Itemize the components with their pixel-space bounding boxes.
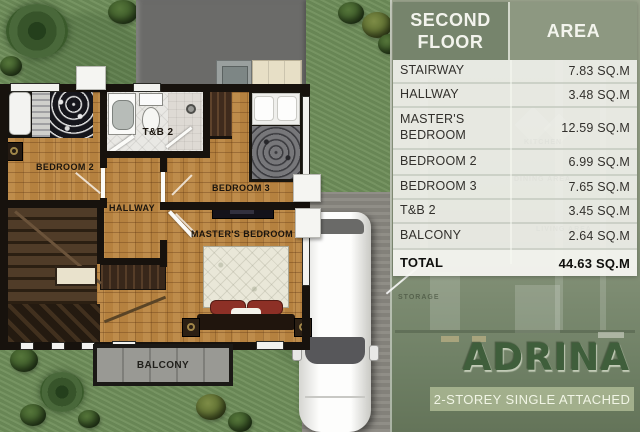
bed3-frame <box>249 90 303 182</box>
bedroom2-label: BEDROOM 2 <box>30 162 100 172</box>
balcony-door <box>256 341 284 350</box>
table-row: HALLWAY 3.48 SQ.M <box>393 82 637 106</box>
hallway-label: HALLWAY <box>102 203 162 213</box>
room-area: 7.83 SQ.M <box>510 64 637 78</box>
room-name: STAIRWAY <box>393 63 510 79</box>
wall-interior <box>203 92 210 151</box>
bush <box>108 0 138 24</box>
door-bedroom3 <box>161 172 165 202</box>
window <box>302 96 310 178</box>
bush <box>20 404 46 426</box>
wall-interior <box>100 151 210 158</box>
tb2-label: T&B 2 <box>136 127 180 138</box>
window <box>51 342 65 350</box>
lamp <box>10 147 18 155</box>
bush <box>338 2 364 24</box>
room-name: BEDROOM 2 <box>393 154 510 170</box>
wall-interior <box>97 208 104 264</box>
subtitle-text: 2-STOREY SINGLE ATTACHED <box>434 392 630 407</box>
bush <box>78 410 100 428</box>
wall-interior <box>100 158 107 168</box>
wardrobe <box>100 261 166 290</box>
window <box>133 83 161 92</box>
closet <box>210 92 232 139</box>
table-row: T&B 2 3.45 SQ.M <box>393 198 637 222</box>
room-area: 3.45 SQ.M <box>510 204 637 218</box>
stair-skylight <box>55 266 97 286</box>
table-row: BEDROOM 2 6.99 SQ.M <box>393 148 637 174</box>
total-label: TOTAL <box>393 255 510 271</box>
bed3-pillow <box>254 96 274 121</box>
tree-fern <box>6 4 68 58</box>
table-total-row: TOTAL 44.63 SQ.M <box>393 248 637 276</box>
table-row: BEDROOM 3 7.65 SQ.M <box>393 174 637 198</box>
bush <box>10 348 38 372</box>
floorplan-flyer: { "table": { "header": {"col1": "SECOND … <box>0 0 640 432</box>
subtitle-bar: 2-STOREY SINGLE ATTACHED <box>430 387 634 411</box>
car-windshield <box>305 337 365 364</box>
wall-left <box>0 84 8 350</box>
bedroom3-label: BEDROOM 3 <box>206 183 276 193</box>
balcony-label: BALCONY <box>137 360 189 371</box>
room-area: 2.64 SQ.M <box>510 229 637 243</box>
door-bedroom2 <box>101 168 105 198</box>
table-column-divider <box>510 60 512 264</box>
room-name: BALCONY <box>393 228 510 244</box>
ghost-step <box>441 336 459 342</box>
area-table-header: SECOND FLOOR AREA <box>393 2 637 60</box>
car-hood-line <box>305 396 365 398</box>
wall-interior <box>160 158 167 172</box>
balcony: BALCONY <box>93 344 233 386</box>
bed2-sheet <box>32 91 50 137</box>
wall-interior <box>100 258 167 265</box>
nightstand <box>182 318 200 337</box>
bathroom-vanity <box>108 93 136 135</box>
lamp <box>187 323 195 331</box>
room-area: 3.48 SQ.M <box>510 88 637 102</box>
table-row: MASTER'S BEDROOM 12.59 SQ.M <box>393 106 637 148</box>
header-second-floor: SECOND FLOOR <box>393 2 510 60</box>
bed3-blanket <box>252 126 300 179</box>
table-row: STAIRWAY 7.83 SQ.M <box>393 60 637 82</box>
header-area: AREA <box>510 2 637 60</box>
ghost-door <box>430 272 460 330</box>
ghost-storage-label: STORAGE <box>398 294 440 301</box>
master-bed-blanket <box>203 246 289 308</box>
room-area: 7.65 SQ.M <box>510 180 637 194</box>
wall-interior <box>167 202 302 210</box>
bed2-pillow <box>9 92 31 135</box>
window <box>10 83 60 92</box>
room-area: 6.99 SQ.M <box>510 155 637 169</box>
bed2-frame <box>7 90 93 138</box>
bush <box>196 394 226 420</box>
shower-head <box>186 104 196 114</box>
table-row: BALCONY 2.64 SQ.M <box>393 222 637 248</box>
total-area: 44.63 SQ.M <box>510 256 637 271</box>
master-headboard <box>197 314 295 330</box>
ghost-room <box>515 285 560 333</box>
ac-unit <box>295 208 321 238</box>
wall-interior <box>100 92 107 158</box>
room-name: MASTER'S BEDROOM <box>393 112 510 143</box>
wall-interior <box>0 200 104 208</box>
bush <box>0 56 22 76</box>
area-table: SECOND FLOOR AREA STAIRWAY 7.83 SQ.M HAL… <box>393 2 637 276</box>
bed3-pillow <box>277 96 297 121</box>
bush <box>228 412 252 432</box>
sink-bowl <box>112 100 134 130</box>
model-name: ADRINA <box>463 336 630 379</box>
toilet-tank <box>139 93 163 106</box>
car-mirror-right <box>369 345 379 361</box>
room-area: 12.59 SQ.M <box>510 121 637 135</box>
bed2-blanket <box>50 90 93 138</box>
ac-unit <box>76 66 106 90</box>
tree-fern <box>40 372 84 412</box>
staircase <box>8 208 97 304</box>
room-name: HALLWAY <box>393 87 510 103</box>
ac-unit <box>293 174 321 202</box>
room-name: BEDROOM 3 <box>393 179 510 195</box>
master-bedroom-label: MASTER'S BEDROOM <box>190 229 294 239</box>
room-name: T&B 2 <box>393 203 510 219</box>
window <box>20 342 34 350</box>
